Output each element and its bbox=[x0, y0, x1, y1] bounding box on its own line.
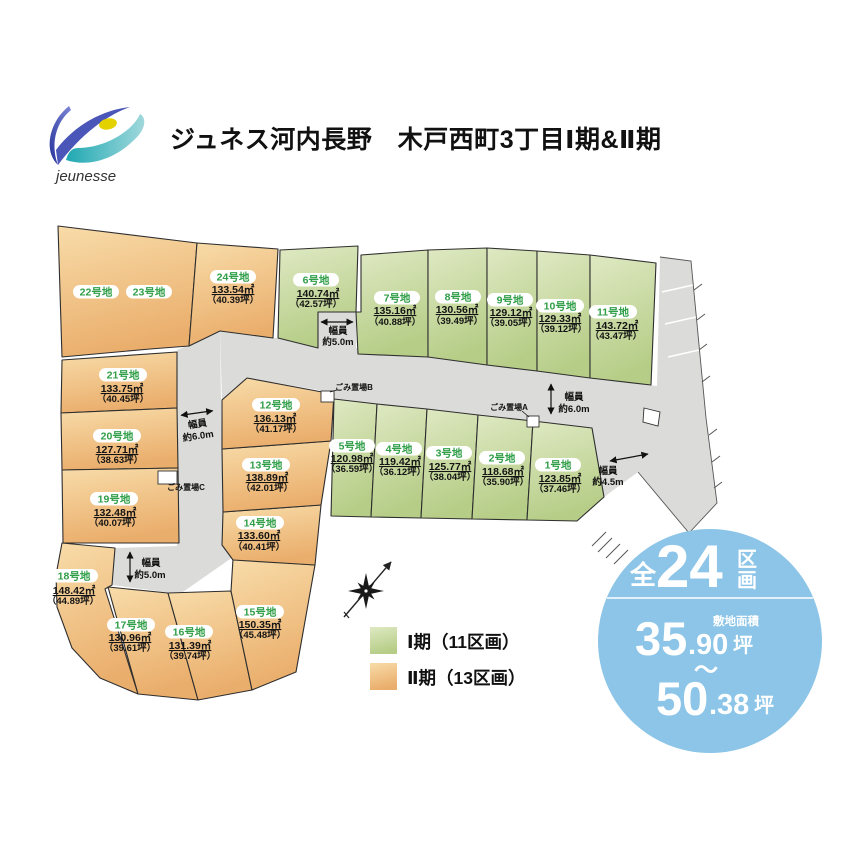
svg-text:10号地: 10号地 bbox=[544, 300, 577, 313]
garbage-label-a: ごみ置場A bbox=[490, 402, 528, 412]
plot-5-label: 5号地 120.98㎡（36.59坪） bbox=[326, 439, 378, 475]
svg-text:21号地: 21号地 bbox=[107, 369, 140, 382]
plot-14-label: 14号地 133.60㎡（40.41坪） bbox=[233, 516, 285, 553]
svg-text:17号地: 17号地 bbox=[115, 619, 148, 632]
plot-9-label: 9号地 129.12㎡（39.05坪） bbox=[485, 293, 537, 329]
svg-text:（35.90坪）: （35.90坪） bbox=[477, 476, 529, 488]
svg-text:13号地: 13号地 bbox=[250, 459, 283, 472]
legend-label-phase1: Ⅰ期（11区画） bbox=[407, 632, 520, 652]
svg-text:（43.47坪）: （43.47坪） bbox=[590, 330, 642, 342]
svg-text:（42.57坪）: （42.57坪） bbox=[290, 298, 342, 310]
svg-text:8号地: 8号地 bbox=[445, 291, 472, 304]
plot-18-label: 18号地 148.42㎡（44.89坪） bbox=[47, 569, 99, 607]
svg-text:130.56㎡: 130.56㎡ bbox=[436, 303, 479, 316]
plot-20-label: 20号地 127.71㎡（38.63坪） bbox=[91, 429, 143, 466]
svg-text:幅員: 幅員 bbox=[564, 391, 584, 403]
svg-text:（40.39坪）: （40.39坪） bbox=[207, 294, 259, 306]
plot-4-label: 4号地 119.42㎡（36.12坪） bbox=[374, 442, 426, 478]
svg-text:（39.61坪）: （39.61坪） bbox=[104, 642, 156, 654]
legend-swatch-phase2 bbox=[370, 663, 397, 690]
svg-text:（40.41坪）: （40.41坪） bbox=[233, 541, 285, 553]
svg-text:（39.49坪）: （39.49坪） bbox=[431, 315, 483, 327]
svg-text:2号地: 2号地 bbox=[489, 452, 516, 465]
svg-text:（40.45坪）: （40.45坪） bbox=[97, 393, 149, 405]
svg-text:（36.12坪）: （36.12坪） bbox=[374, 466, 426, 478]
legend-swatch-phase1 bbox=[370, 627, 397, 654]
svg-text:24号地: 24号地 bbox=[217, 271, 250, 284]
svg-text:23号地: 23号地 bbox=[133, 286, 166, 299]
svg-text:9号地: 9号地 bbox=[497, 294, 524, 307]
svg-text:（37.46坪）: （37.46坪） bbox=[534, 483, 586, 495]
plot-13-label: 13号地 138.89㎡（42.01坪） bbox=[241, 458, 293, 494]
svg-text:16号地: 16号地 bbox=[173, 626, 206, 639]
plot-1-label: 1号地 123.85㎡（37.46坪） bbox=[534, 458, 586, 495]
svg-text:19号地: 19号地 bbox=[98, 493, 131, 506]
legend-label-phase2: Ⅱ期（13区画） bbox=[407, 668, 526, 688]
svg-text:7号地: 7号地 bbox=[384, 292, 411, 305]
plot-12-label: 12号地 136.13㎡（41.17坪） bbox=[250, 398, 302, 435]
svg-text:（40.07坪）: （40.07坪） bbox=[89, 517, 141, 529]
svg-text:約5.0m: 約5.0m bbox=[134, 569, 165, 581]
svg-text:4号地: 4号地 bbox=[386, 443, 413, 456]
badge-max-int: 50 bbox=[656, 672, 708, 725]
plot-15-label: 15号地 150.35㎡（45.48坪） bbox=[234, 605, 286, 641]
garbage-box-a bbox=[527, 416, 539, 427]
garbage-box-b bbox=[321, 391, 334, 402]
plot-11-label: 11号地 143.72㎡（43.47坪） bbox=[589, 305, 642, 342]
flyer-canvas: { "header": { "title": "ジュネス河内長野 木戸西町3丁目… bbox=[0, 0, 843, 843]
svg-text:（41.17坪）: （41.17坪） bbox=[250, 423, 302, 435]
svg-text:幅員: 幅員 bbox=[598, 465, 618, 477]
plot-23-label: 23号地 bbox=[126, 285, 172, 299]
plot-17-label: 17号地 130.96㎡（39.61坪） bbox=[104, 618, 156, 654]
svg-text:22号地: 22号地 bbox=[80, 286, 113, 299]
plot-2-label: 2号地 118.68㎡（35.90坪） bbox=[477, 451, 529, 488]
badge-suffix-bottom: 画 bbox=[737, 570, 757, 592]
svg-text:（39.12坪）: （39.12坪） bbox=[535, 323, 587, 335]
plot-10-label: 10号地 129.33㎡（39.12坪） bbox=[535, 299, 587, 335]
svg-text:（39.74坪）: （39.74坪） bbox=[164, 650, 216, 662]
svg-text:幅員: 幅員 bbox=[328, 325, 348, 337]
svg-text:14号地: 14号地 bbox=[244, 517, 277, 530]
svg-text:15号地: 15号地 bbox=[244, 606, 277, 619]
svg-text:幅員: 幅員 bbox=[141, 557, 161, 569]
svg-text:5号地: 5号地 bbox=[339, 440, 366, 453]
badge-min-int: 35 bbox=[635, 612, 687, 665]
svg-text:3号地: 3号地 bbox=[436, 447, 463, 460]
svg-text:18号地: 18号地 bbox=[58, 570, 91, 583]
badge-count: 24 bbox=[656, 533, 723, 600]
svg-text:（45.48坪）: （45.48坪） bbox=[234, 629, 286, 641]
plot-24-label: 24号地 133.54㎡（40.39坪） bbox=[207, 270, 259, 306]
svg-text:1号地: 1号地 bbox=[545, 459, 572, 472]
svg-text:135.16㎡: 135.16㎡ bbox=[374, 304, 417, 317]
badge-max-unit: 坪 bbox=[754, 694, 774, 717]
svg-text:約5.0m: 約5.0m bbox=[322, 336, 353, 348]
svg-text:（39.05坪）: （39.05坪） bbox=[485, 317, 537, 329]
compass-icon bbox=[344, 562, 391, 618]
summary-badge: 全 24 区 画 敷地面積 35 .90 坪 ～ 50 .38 坪 bbox=[598, 529, 822, 753]
svg-text:約6.0m: 約6.0m bbox=[558, 403, 589, 415]
plot-3-label: 3号地 125.77㎡（38.04坪） bbox=[424, 446, 476, 483]
svg-text:（40.88坪）: （40.88坪） bbox=[369, 316, 421, 328]
svg-text:（42.01坪）: （42.01坪） bbox=[241, 482, 293, 494]
badge-prefix: 全 bbox=[629, 560, 657, 590]
garbage-label-b: ごみ置場B bbox=[335, 382, 373, 392]
svg-text:20号地: 20号地 bbox=[101, 430, 134, 443]
plot-19-label: 19号地 132.48㎡（40.07坪） bbox=[89, 492, 141, 529]
svg-text:12号地: 12号地 bbox=[260, 399, 293, 412]
plot-21-label: 21号地 133.75㎡（40.45坪） bbox=[97, 368, 149, 405]
svg-text:（44.89坪）: （44.89坪） bbox=[47, 595, 99, 607]
badge-max-dec: .38 bbox=[709, 689, 749, 721]
svg-text:（38.04坪）: （38.04坪） bbox=[424, 471, 476, 483]
svg-text:（38.63坪）: （38.63坪） bbox=[91, 454, 143, 466]
lot-map: 22号地 23号地 24号地 133.54㎡（40.39坪） 6号地 140.7… bbox=[0, 0, 843, 843]
badge-min-unit: 坪 bbox=[733, 634, 753, 657]
garbage-label-c: ごみ置場C bbox=[167, 482, 205, 492]
plot-6-label: 6号地 140.74㎡（42.57坪） bbox=[290, 273, 342, 310]
plot-16-label: 16号地 131.39㎡（39.74坪） bbox=[164, 625, 216, 662]
badge-suffix-top: 区 bbox=[737, 549, 757, 571]
svg-text:133.60㎡: 133.60㎡ bbox=[238, 529, 281, 542]
svg-text:約4.5m: 約4.5m bbox=[592, 476, 623, 488]
plot-7-label: 7号地 135.16㎡（40.88坪） bbox=[369, 291, 421, 328]
svg-text:（36.59坪）: （36.59坪） bbox=[326, 463, 378, 475]
svg-text:11号地: 11号地 bbox=[597, 306, 630, 319]
plot-8-label: 8号地 130.56㎡（39.49坪） bbox=[431, 290, 483, 327]
plot-22-label: 22号地 bbox=[73, 285, 119, 299]
svg-text:6号地: 6号地 bbox=[303, 274, 330, 287]
badge-area-caption: 敷地面積 bbox=[713, 614, 759, 628]
legend: Ⅰ期（11区画） Ⅱ期（13区画） bbox=[370, 627, 526, 690]
